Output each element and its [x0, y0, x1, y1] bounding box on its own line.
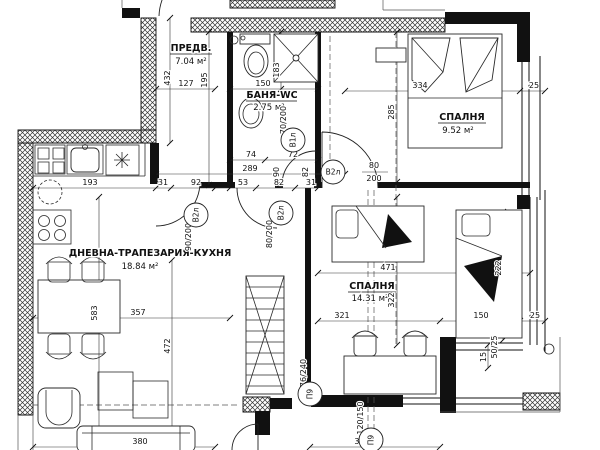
hob-symbol [114, 152, 130, 168]
door-tag: В2л [269, 201, 293, 225]
kitchen-sink [71, 148, 99, 172]
desk-chair [402, 331, 428, 356]
dimension-label: 90/200 [184, 223, 193, 251]
dimension-label: 432 [163, 70, 172, 85]
nightstand [376, 48, 406, 62]
bathroom-fixtures [230, 34, 318, 128]
room-name-bath: БАНЯ-WC [246, 90, 297, 101]
dimension-label: 195 [200, 72, 209, 87]
door-tag: В2л [184, 203, 208, 227]
stove [33, 210, 71, 244]
dimension-label: 80/200 [265, 220, 274, 248]
dimension-label: 150 [473, 311, 488, 320]
coffee-table [133, 381, 168, 418]
coffee-table [98, 372, 133, 410]
dimension-label: 92 [191, 178, 201, 187]
room-area-living: 18.84 м² [122, 262, 159, 272]
dining-chair [80, 257, 106, 282]
door-tag: В1л [281, 128, 305, 152]
desk [344, 356, 436, 394]
floor-plan-canvas: ПРЕДВ. 7.04 м² БАНЯ-WC 2.75 м² СПАЛНЯ 9.… [0, 0, 600, 450]
dimension-label: 74 [246, 150, 256, 159]
dimension-label: 90 [272, 167, 281, 177]
burner [55, 230, 66, 241]
dimension-label: 25 [529, 81, 539, 90]
burner [39, 230, 50, 241]
dimension-label: 334 [412, 81, 427, 90]
tag-label: П9 [306, 389, 315, 400]
dimension-label: 183 [272, 62, 281, 77]
room-name-bedroom1: СПАЛНЯ [439, 112, 484, 123]
room-name-hall: ПРЕДВ. [171, 43, 212, 54]
kitchen-fixtures [33, 143, 145, 244]
toilet-bowl [244, 45, 268, 77]
tag-label: П9 [367, 435, 376, 446]
window-tag: П9 [298, 382, 322, 406]
dimension-label: 380 [132, 437, 147, 446]
dimension-label: 120/150 [356, 401, 365, 434]
dimension-label: 53 [238, 178, 248, 187]
dimension-label: 150 [255, 79, 270, 88]
dining-chair [46, 334, 72, 359]
single-bed-horizontal [332, 206, 424, 262]
dimension-label: 82 [301, 167, 310, 177]
tag-label: В2л [326, 168, 341, 177]
dining-table [38, 280, 120, 333]
room-area-bedroom1: 9.52 м² [442, 126, 473, 136]
door-tag: В2л [321, 160, 345, 184]
room-area-hall: 7.04 м² [175, 57, 206, 67]
dimension-label: 82 [274, 178, 284, 187]
dining-set [38, 257, 120, 359]
shower-drain [293, 55, 299, 61]
dimension-label: 127 [178, 79, 193, 88]
dimension-label: 321 [334, 311, 349, 320]
round-appliance [38, 180, 62, 204]
dimension-label: 31 [158, 178, 168, 187]
dimension-label: 193 [82, 178, 97, 187]
kitchen-cabinet [35, 145, 65, 174]
burner [39, 216, 50, 227]
room-name-bedroom2: СПАЛНЯ [349, 281, 394, 292]
window-tag: П9 [359, 428, 383, 450]
tag-label: В1л [289, 132, 298, 147]
dimension-label: 200 [366, 174, 381, 183]
armchair [38, 388, 80, 428]
dimension-label: 25 [530, 311, 540, 320]
dimension-label: 471 [380, 263, 395, 272]
dimension-label: 285 [387, 104, 396, 119]
dimension-label: 50/25 [490, 335, 499, 358]
dimension-label: 289 [242, 164, 257, 173]
dimension-label: 80 [369, 161, 379, 170]
dining-chair [80, 334, 106, 359]
dimension-label: 15 [479, 352, 488, 362]
dimension-label: 31 [306, 178, 316, 187]
burner [55, 216, 66, 227]
dining-chair [46, 257, 72, 282]
room-name-living: ДНЕВНА-ТРАПЕЗАРИЯ-КУХНЯ [69, 248, 232, 259]
dimension-label: 222 [494, 260, 503, 275]
tag-label: В2л [277, 205, 286, 220]
dimension-label: 322 [387, 292, 396, 307]
dimension-label: 472 [163, 338, 172, 353]
tag-label: В2л [192, 207, 201, 222]
room-area-bedroom2: 14.31 м² [352, 294, 389, 304]
dimension-label: 583 [90, 305, 99, 320]
desk-chair [352, 331, 378, 356]
cabinet-doors [38, 148, 64, 173]
dimension-label: 357 [130, 308, 145, 317]
